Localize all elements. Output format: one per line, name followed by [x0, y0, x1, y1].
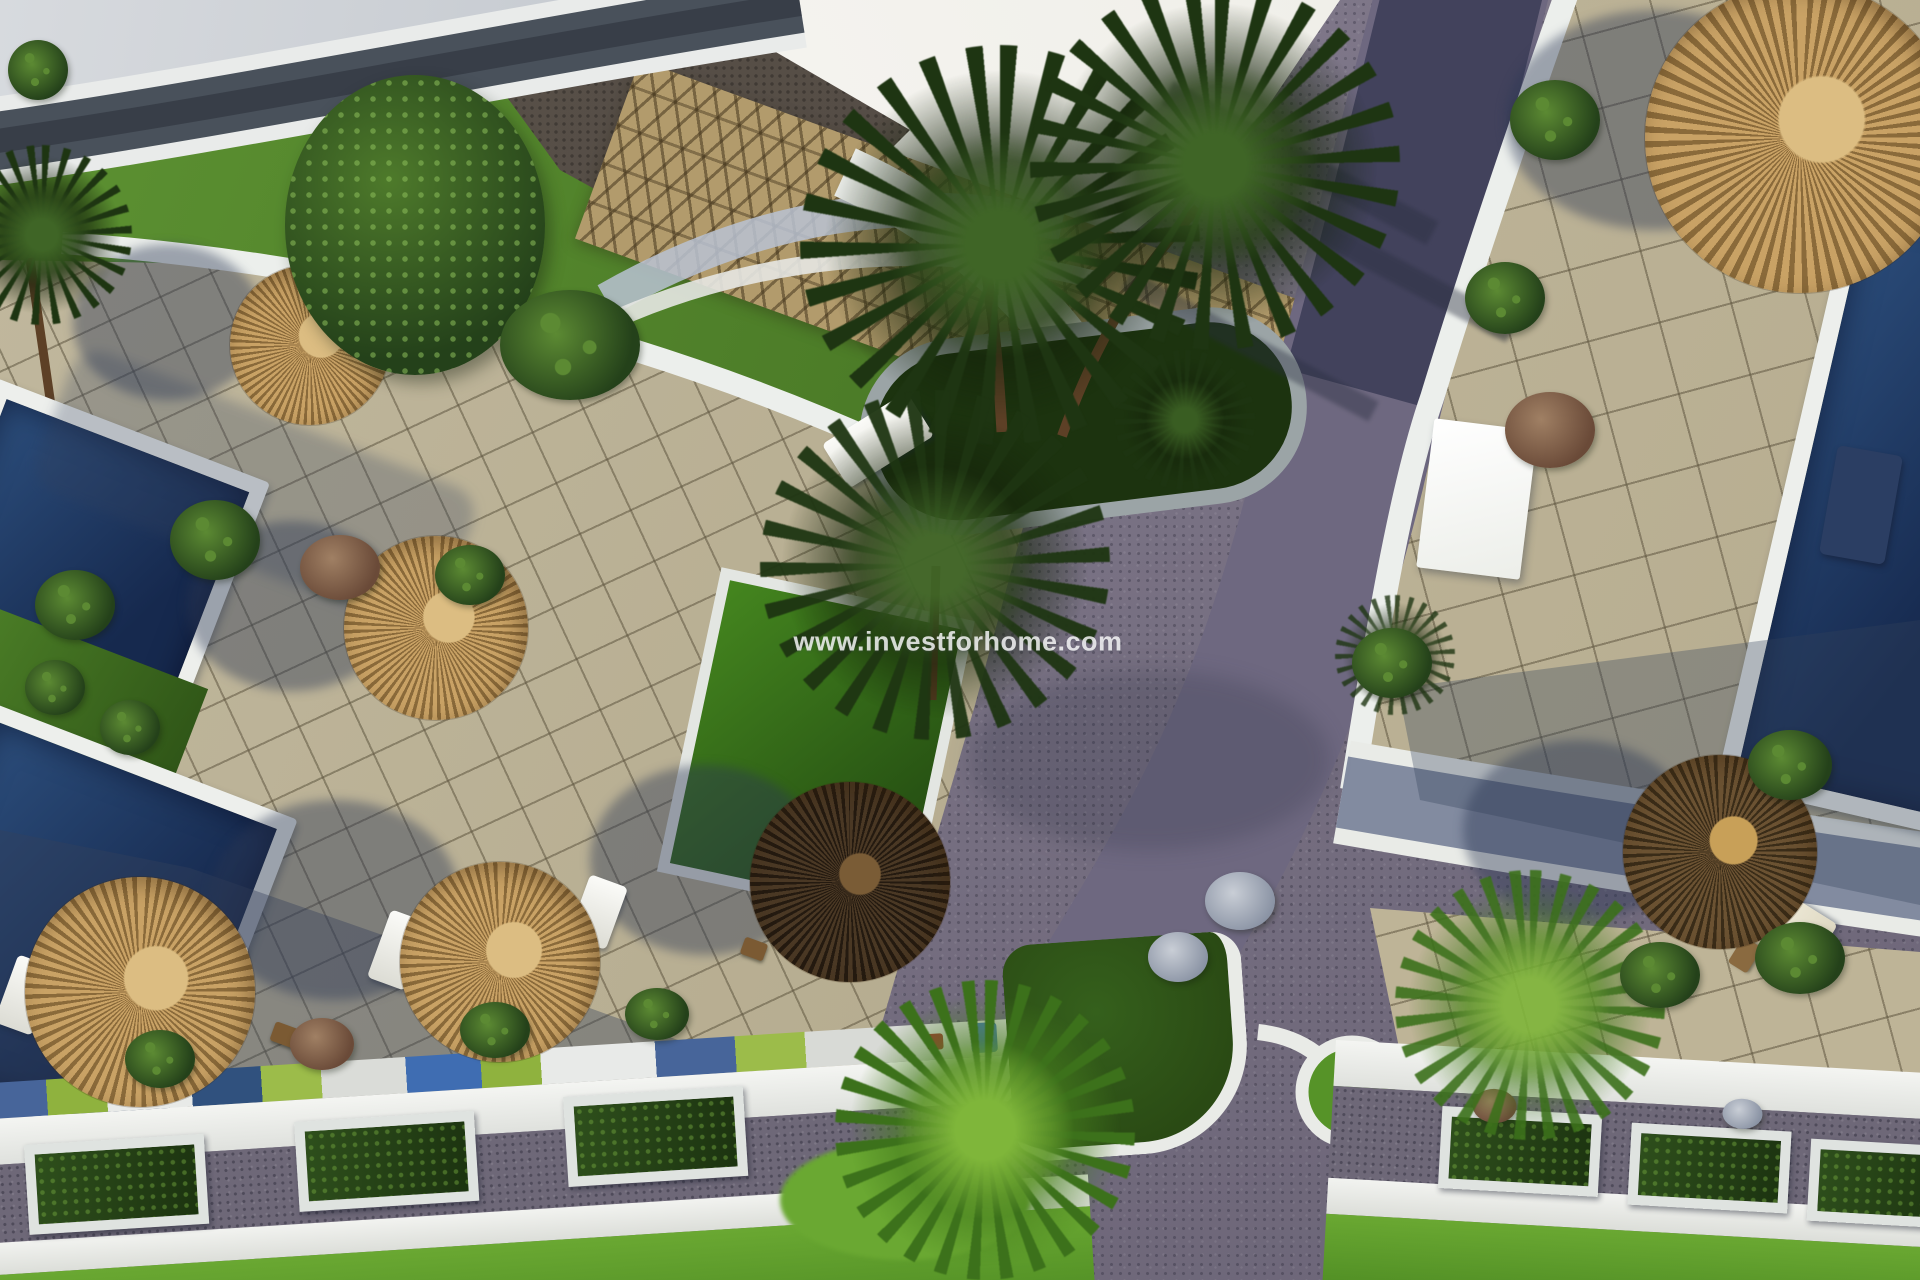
rock-garden-shrub [300, 535, 380, 600]
roadside-shrub [1352, 628, 1432, 698]
island-grass-tuft [1115, 350, 1255, 490]
slate-path-center [0, 4, 800, 142]
poolside-plants [170, 500, 260, 580]
planter-box [1807, 1139, 1920, 1229]
wall-shrub [625, 988, 689, 1040]
straw-parasol [1645, 0, 1920, 293]
terrace-plants [1755, 922, 1845, 994]
planter-box [294, 1111, 479, 1212]
aerial-resort-render: www.investforhome.com [0, 0, 1920, 1280]
poolside-plants [1748, 730, 1832, 800]
straw-parasol [230, 265, 390, 425]
planter-box [563, 1086, 748, 1187]
rock-garden-shrub [435, 545, 505, 605]
roadside-shrub [1505, 392, 1595, 468]
flowering-shrub [1148, 932, 1208, 982]
white-path-edging [0, 4, 800, 142]
bush [500, 290, 640, 400]
palm-tree-crown [760, 390, 1110, 740]
palm-tree-crown [1030, 0, 1400, 350]
planter-box [1627, 1123, 1791, 1214]
roadside-shrub [1510, 80, 1600, 160]
wall-shrub [460, 1002, 530, 1058]
planter-box [24, 1134, 209, 1235]
poolside-plants [25, 660, 85, 715]
slate-path [0, 4, 800, 142]
bright-palm-bush [1395, 870, 1665, 1140]
wall-shrub [290, 1018, 354, 1070]
poolside-plants [35, 570, 115, 640]
poolside-plants [100, 700, 160, 755]
corner-plants [8, 40, 68, 100]
dark-straw-parasol [750, 782, 950, 982]
flowering-shrub [1205, 872, 1275, 930]
wall-shrub [125, 1030, 195, 1088]
terrace-plants [1620, 942, 1700, 1008]
bright-palm-bush [835, 980, 1135, 1280]
roadside-shrub [1465, 262, 1545, 334]
